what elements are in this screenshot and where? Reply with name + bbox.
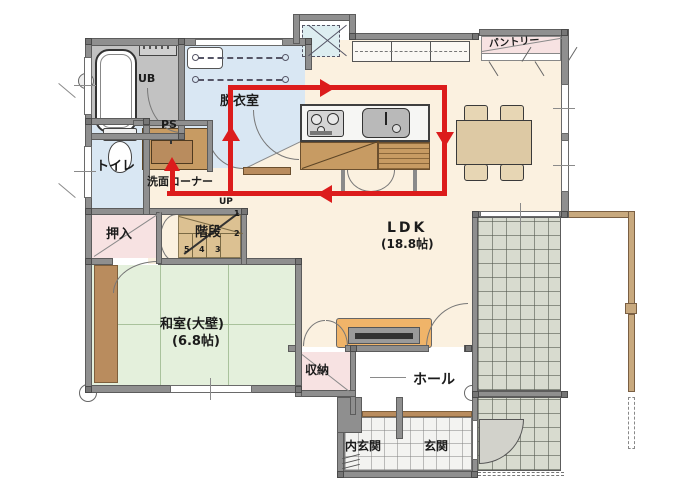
tick <box>370 377 406 378</box>
pergola-post <box>628 211 635 306</box>
wall-cabinet-dashline <box>355 51 467 52</box>
stair-number: 2 <box>234 230 240 238</box>
post <box>85 258 92 265</box>
washroom-corner-label: 洗面コーナー <box>147 176 213 188</box>
pipe-space-label: PS <box>161 119 177 131</box>
post <box>472 391 479 398</box>
route-arrow-right <box>320 79 335 97</box>
post <box>178 38 185 45</box>
pergola-beam <box>563 211 635 218</box>
tick <box>74 171 96 172</box>
window <box>170 385 252 393</box>
wall <box>156 212 162 264</box>
tick <box>520 203 521 225</box>
wall <box>85 133 185 140</box>
window <box>195 39 283 46</box>
post <box>295 258 302 265</box>
window <box>561 84 569 134</box>
toilet-label: トイレ <box>96 160 135 174</box>
wall <box>295 390 356 397</box>
dining-chair <box>464 164 488 181</box>
shuno-label: 収納 <box>305 364 329 377</box>
wall <box>241 208 247 265</box>
post <box>561 211 568 218</box>
wall <box>293 14 300 44</box>
post <box>143 118 150 125</box>
route-arrow-up <box>222 126 240 141</box>
wall <box>207 120 213 172</box>
up-label: UP <box>219 198 233 207</box>
post <box>561 391 568 398</box>
wall <box>85 208 247 215</box>
window <box>561 140 569 192</box>
tick <box>210 378 211 400</box>
stair-number: 3 <box>215 246 221 254</box>
wall <box>295 258 302 397</box>
dining-table <box>456 120 532 165</box>
post <box>472 211 479 218</box>
wall <box>349 33 479 40</box>
washing-machine-knobs <box>143 46 173 49</box>
tick <box>553 165 575 166</box>
tatami-line <box>228 265 229 385</box>
post <box>350 345 357 352</box>
route-top <box>228 85 447 90</box>
porch-dashed-edge <box>478 472 564 476</box>
pergola-joint <box>625 303 637 314</box>
route-spur <box>170 170 175 194</box>
washitsu-size-label: (6.8帖) <box>172 335 220 349</box>
tick <box>553 108 575 109</box>
drying-pole-end <box>192 54 199 61</box>
stairs-label: 階段 <box>195 226 221 240</box>
washitsu-label: 和室(大壁) <box>160 318 224 332</box>
floor-plan: UB 脱衣室 PS トイレ 洗面コーナー 押入 階段 UP 1 2 3 4 5 … <box>0 0 700 500</box>
pergola-dashed-post <box>628 397 635 449</box>
terrace-deck <box>477 217 561 391</box>
bathtub-inner <box>100 54 132 128</box>
exterior-mark <box>58 183 75 198</box>
post <box>305 38 312 45</box>
post <box>472 33 479 40</box>
dressing-room-label: 脱衣室 <box>220 95 259 109</box>
post <box>85 386 92 393</box>
pergola-post <box>628 314 635 392</box>
post <box>349 33 356 40</box>
drying-pole-end <box>192 76 199 83</box>
tv-screen <box>355 333 413 339</box>
post <box>561 29 568 36</box>
wall <box>337 471 478 478</box>
wall <box>158 258 302 265</box>
post <box>85 208 92 215</box>
inner-entrance-label: 内玄関 <box>345 440 381 453</box>
route-arrow-left <box>317 185 332 203</box>
entrance-door-opening <box>472 420 478 460</box>
drying-pole-end <box>282 76 289 83</box>
drying-pole <box>198 57 282 59</box>
ldk-label: LDK <box>387 221 427 236</box>
route-bottom <box>167 191 447 196</box>
post <box>471 471 478 478</box>
post <box>178 133 185 140</box>
route-arrow-up-spur <box>164 157 180 171</box>
wall <box>350 345 356 415</box>
kitchen-base-slatted <box>378 142 430 170</box>
post <box>85 38 92 45</box>
ldk-size-label: (18.8帖) <box>381 238 434 251</box>
post <box>241 208 248 215</box>
tick <box>74 85 96 86</box>
oshiire-label: 押入 <box>106 228 132 242</box>
route-arrow-down <box>436 132 454 147</box>
drying-pole-end <box>282 54 289 61</box>
stove-burner <box>311 114 322 125</box>
hall-label: ホール <box>413 373 455 388</box>
stair-number: 4 <box>199 246 205 254</box>
wall <box>345 345 429 352</box>
post <box>85 118 92 125</box>
corner-wood-ledge <box>243 167 291 175</box>
dining-chair <box>500 164 524 181</box>
sink-drain <box>392 124 401 133</box>
post <box>337 471 344 478</box>
wall <box>472 391 568 397</box>
post <box>465 345 472 352</box>
window <box>84 146 92 198</box>
stove-burner <box>327 113 339 125</box>
wall <box>479 29 569 36</box>
window <box>84 57 92 115</box>
pantry-door-v <box>568 47 578 62</box>
post <box>295 386 302 393</box>
agari-kamachi-step <box>362 411 472 417</box>
sink-faucet <box>385 112 387 125</box>
wall <box>396 397 403 439</box>
entrance-label: 玄関 <box>424 440 448 453</box>
drying-pole <box>198 79 282 81</box>
wall <box>293 14 356 21</box>
stair-number: 5 <box>184 246 190 254</box>
stair-number: 1 <box>234 210 240 218</box>
wall <box>472 211 478 397</box>
stove-grill <box>310 131 332 135</box>
wall <box>472 397 478 422</box>
bath-label: UB <box>138 73 155 85</box>
